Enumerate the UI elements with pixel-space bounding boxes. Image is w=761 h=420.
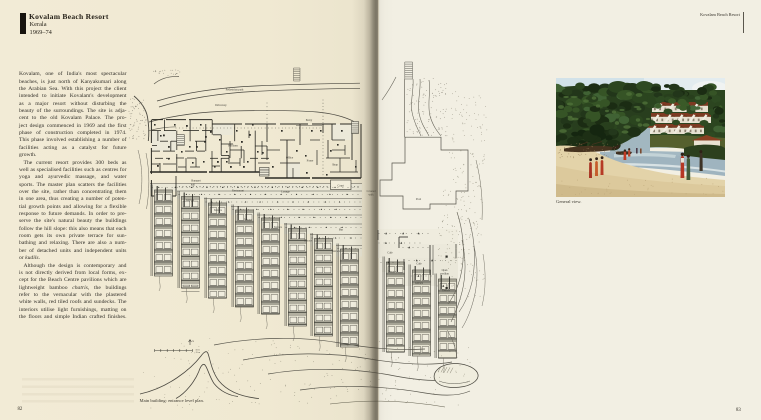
svg-text:Terrace: Terrace — [304, 240, 313, 243]
svg-text:Terrace: Terrace — [442, 290, 451, 293]
svg-text:Terrace: Terrace — [186, 199, 195, 202]
svg-text:Kitchen: Kitchen — [228, 144, 238, 148]
svg-text:Pool: Pool — [416, 197, 421, 201]
svg-text:Terrace: Terrace — [415, 282, 424, 285]
svg-text:Shop: Shop — [332, 163, 338, 166]
svg-text:Terrace: Terrace — [214, 209, 223, 212]
svg-text:Cafe: Cafe — [416, 263, 422, 266]
svg-text:Open: Open — [442, 269, 448, 272]
svg-text:pavilion: pavilion — [440, 273, 449, 276]
svg-text:Lounge: Lounge — [281, 191, 290, 194]
svg-text:Office: Office — [286, 156, 294, 160]
svg-text:Banquet: Banquet — [191, 180, 201, 183]
svg-text:Bar: Bar — [339, 229, 343, 232]
svg-text:50 ft: 50 ft — [196, 348, 200, 351]
svg-text:N: N — [192, 340, 194, 343]
svg-text:15 m: 15 m — [196, 352, 201, 354]
svg-text:Terrace: Terrace — [274, 226, 283, 229]
svg-text:Court: Court — [338, 184, 345, 187]
svg-text:Driveway: Driveway — [215, 103, 227, 107]
svg-text:Terrace: Terrace — [244, 219, 253, 222]
svg-text:Foyer: Foyer — [307, 159, 314, 163]
svg-text:hall: hall — [191, 183, 195, 186]
svg-text:Entry: Entry — [306, 118, 313, 122]
svg-text:Pedestrian path: Pedestrian path — [226, 87, 244, 91]
svg-text:Terrace: Terrace — [332, 250, 341, 253]
svg-text:Restaurant: Restaurant — [232, 190, 244, 193]
